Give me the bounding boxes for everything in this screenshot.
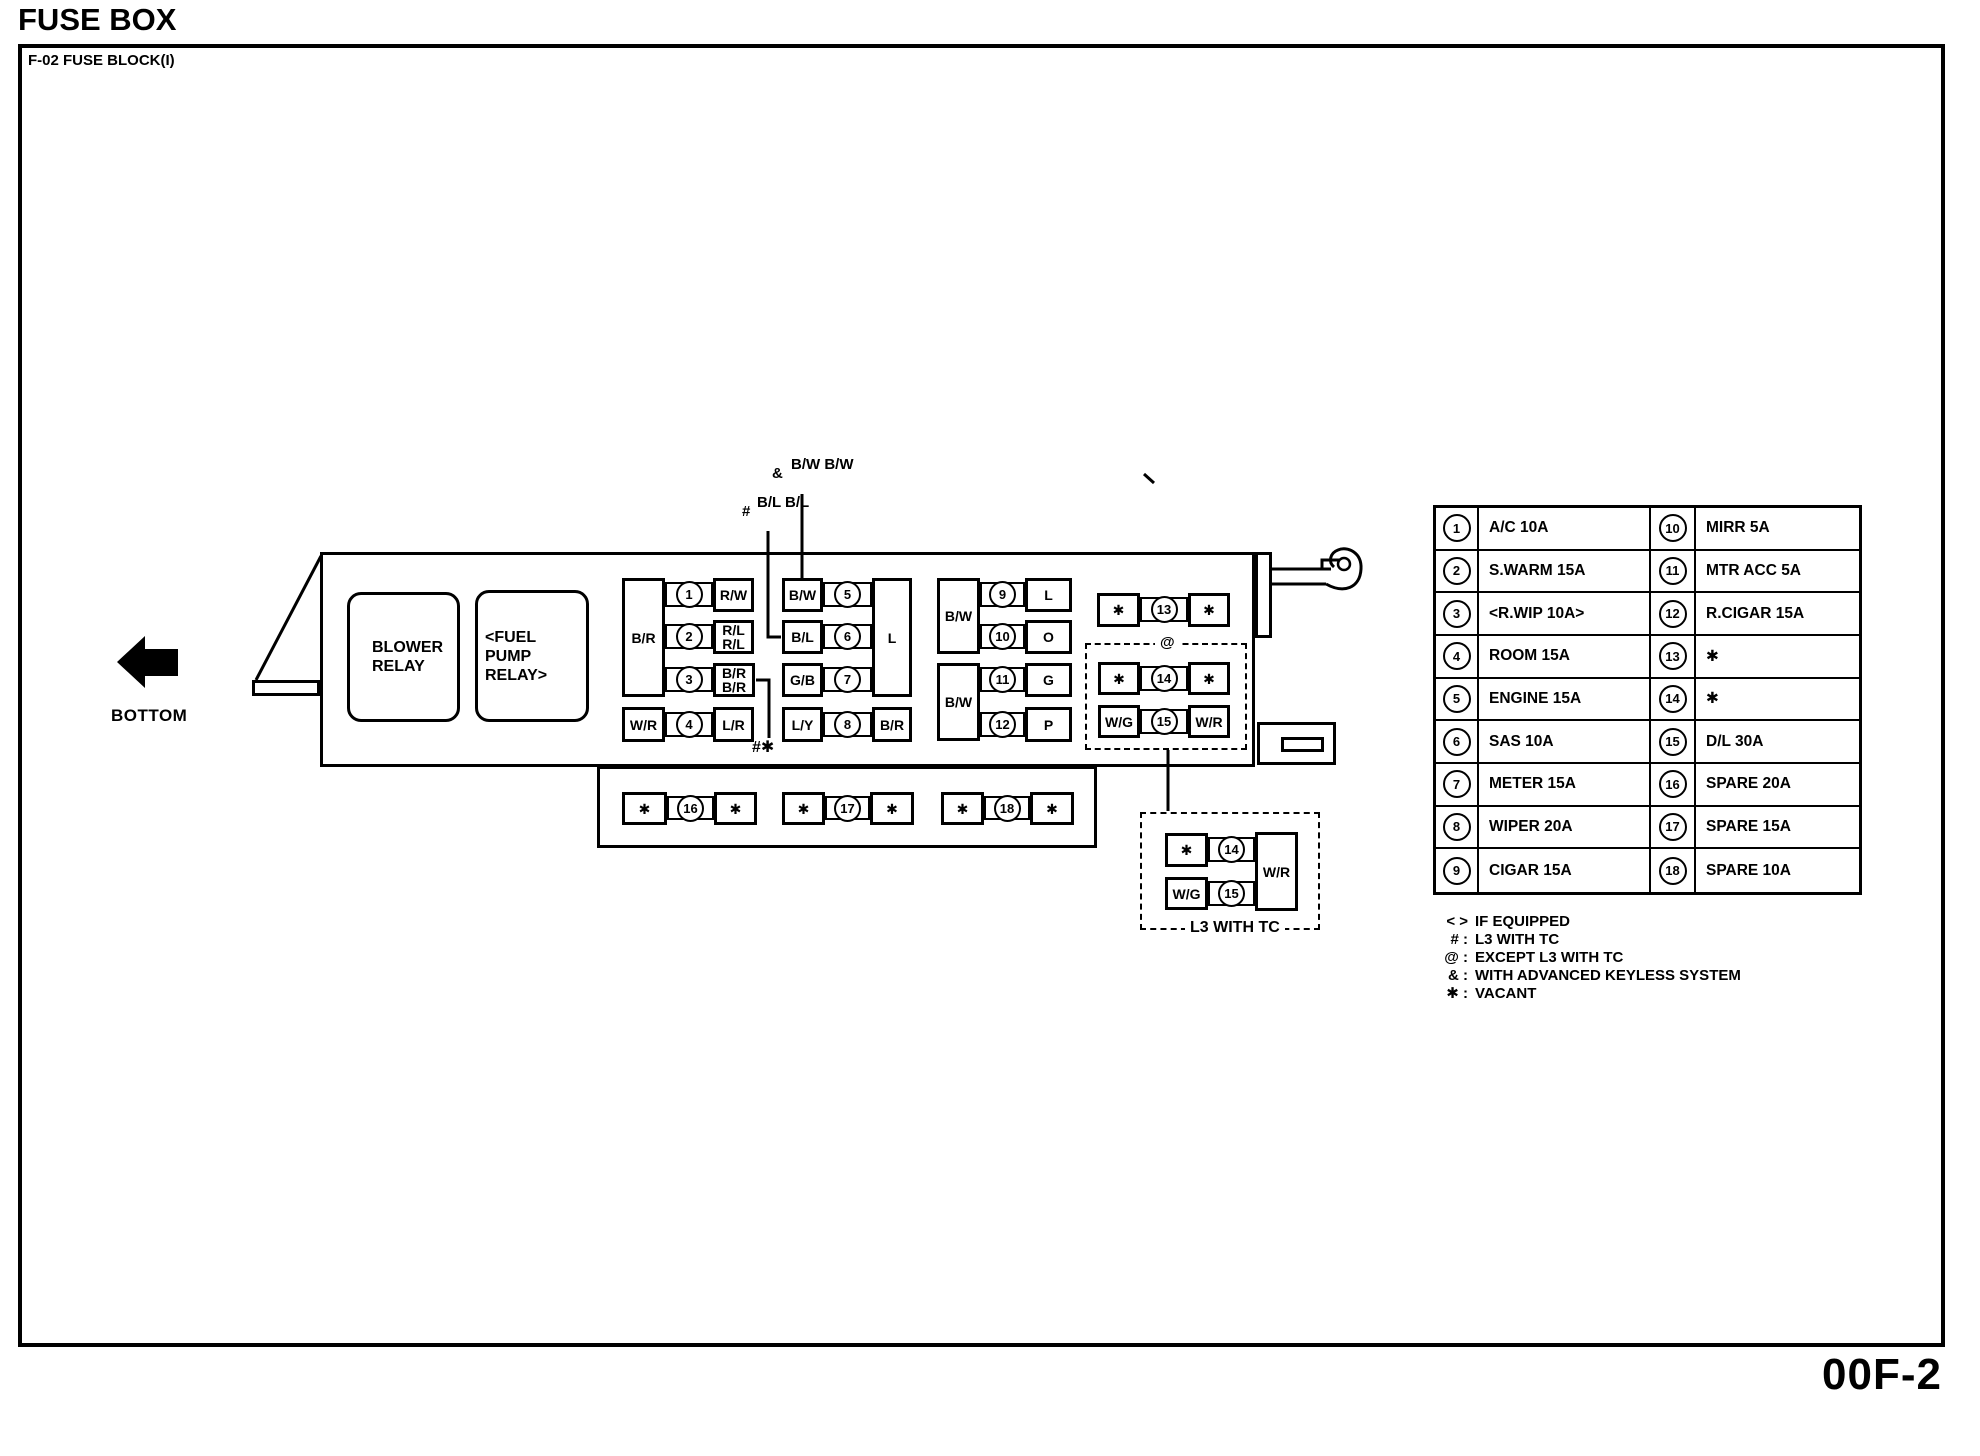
fuse-8-connector: 8 — [823, 712, 872, 737]
fuse-5-left-wire: B/W — [782, 578, 823, 612]
fuse-18-badge: 18 — [1659, 857, 1687, 885]
fuse-6-badge: 6 — [1443, 728, 1471, 756]
legend: < > IF EQUIPPED # : L3 WITH TC @ : EXCEP… — [1434, 913, 1741, 1003]
fuse-4-right-wire: L/R — [713, 707, 754, 742]
fuse-2-badge: 2 — [1443, 557, 1471, 585]
fuse-17-number: 17 — [834, 795, 861, 822]
page-number: 00F-2 — [1650, 1350, 1942, 1400]
legend-text: WITH ADVANCED KEYLESS SYSTEM — [1475, 967, 1741, 985]
fuse-group2-common-wire: L — [872, 578, 912, 697]
fuse-10-connector: 10 — [980, 624, 1025, 649]
fuse-2-right-wire: R/L R/L — [713, 620, 754, 654]
fuse-12-number: 12 — [989, 711, 1016, 738]
fuse-13-right-wire: ✱ — [1188, 593, 1230, 627]
fuse-7-left-wire: G/B — [782, 663, 823, 697]
left-flap-bar — [252, 680, 320, 696]
page-title: FUSE BOX — [18, 2, 176, 38]
l3-fuse-15-left-wire: W/G — [1165, 877, 1208, 910]
fuse-11-badge: 11 — [1659, 557, 1687, 585]
l3-fuse-15-connector: 15 — [1208, 881, 1255, 906]
fuse-1-right-wire: R/W — [713, 578, 754, 612]
fuse-4-number: 4 — [676, 711, 703, 738]
fuse-5-badge: 5 — [1443, 685, 1471, 713]
fuse-3-number: 3 — [676, 666, 703, 693]
manual-page: FUSE BOX F-02 FUSE BLOCK(I) 00F-2 BOTTOM… — [0, 0, 1980, 1456]
keyless-wires: B/W B/W — [791, 457, 853, 473]
fuse-1-connector: 1 — [665, 582, 713, 607]
legend-text: EXCEPT L3 WITH TC — [1475, 949, 1741, 967]
fuse-17-badge: 17 — [1659, 813, 1687, 841]
table-num-cell: 12 — [1651, 593, 1696, 636]
table-num-cell: 10 — [1651, 508, 1696, 551]
fuse-1-badge: 1 — [1443, 514, 1471, 542]
fuse-16-badge: 16 — [1659, 770, 1687, 798]
fuse-13-number: 13 — [1151, 596, 1178, 623]
table-num-cell: 5 — [1436, 679, 1479, 722]
fuse-3-connector: 3 — [665, 667, 713, 692]
fuse-8-number: 8 — [834, 711, 861, 738]
fuse-15-number: 15 — [1151, 708, 1178, 735]
table-label-cell: A/C 10A — [1479, 508, 1651, 551]
bottom-arrow-label: BOTTOM — [111, 706, 187, 726]
legend-symbol: @ : — [1434, 949, 1468, 967]
table-label-cell: MTR ACC 5A — [1696, 551, 1859, 594]
keyless-symbol: & — [772, 466, 783, 482]
l3-box-label: L3 WITH TC — [1185, 919, 1285, 937]
fuse-5-connector: 5 — [823, 582, 872, 607]
fuse-15-connector: 15 — [1140, 709, 1188, 734]
l3tc-wires: B/L B/L — [757, 495, 809, 511]
table-num-cell: 15 — [1651, 721, 1696, 764]
fuse-group3a-common-wire: B/W — [937, 578, 980, 654]
fuse-2-connector: 2 — [665, 624, 713, 649]
fuse-8-left-wire: L/Y — [782, 707, 823, 742]
table-num-cell: 9 — [1436, 849, 1479, 892]
table-label-cell: ENGINE 15A — [1479, 679, 1651, 722]
fuse-11-right-wire: G — [1025, 663, 1072, 697]
table-num-cell: 14 — [1651, 679, 1696, 722]
fuse-10-right-wire: O — [1025, 620, 1072, 654]
fuse-10-number: 10 — [989, 623, 1016, 650]
legend-symbol: & : — [1434, 967, 1468, 985]
l3-fuse-15-number: 15 — [1218, 880, 1245, 907]
fuse-15-badge: 15 — [1659, 728, 1687, 756]
legend-text: VACANT — [1475, 985, 1741, 1003]
hash-star-annotation: #✱ — [752, 740, 774, 756]
fusebox-right-rib — [1255, 552, 1272, 638]
fuse-14-right-wire: ✱ — [1188, 662, 1230, 695]
fuse-application-table: 1 A/C 10A 10 MIRR 5A 2 S.WARM 15A 11 MTR… — [1433, 505, 1862, 895]
table-label-cell: SPARE 15A — [1696, 807, 1859, 850]
table-num-cell: 8 — [1436, 807, 1479, 850]
fuse-5-number: 5 — [834, 581, 861, 608]
fuse-6-number: 6 — [834, 623, 861, 650]
legend-symbol: < > — [1434, 913, 1468, 931]
table-num-cell: 17 — [1651, 807, 1696, 850]
fuse-18-right-wire: ✱ — [1030, 792, 1074, 825]
table-label-cell: D/L 30A — [1696, 721, 1859, 764]
table-num-cell: 18 — [1651, 849, 1696, 892]
fuse-9-number: 9 — [989, 581, 1016, 608]
table-num-cell: 11 — [1651, 551, 1696, 594]
table-label-cell: S.WARM 15A — [1479, 551, 1651, 594]
fuse-12-right-wire: P — [1025, 707, 1072, 742]
l3tc-symbol: # — [742, 504, 750, 520]
fuse-9-connector: 9 — [980, 582, 1025, 607]
table-num-cell: 3 — [1436, 593, 1479, 636]
fuse-14-badge: 14 — [1659, 685, 1687, 713]
fuse-8-right-wire: B/R — [872, 707, 912, 742]
fuse-11-number: 11 — [989, 666, 1016, 693]
mount-tab-slot — [1281, 737, 1324, 752]
fuse-2-number: 2 — [676, 623, 703, 650]
fuse-3-badge: 3 — [1443, 600, 1471, 628]
fuse-17-connector: 17 — [825, 796, 870, 820]
table-label-cell: SPARE 10A — [1696, 849, 1859, 892]
fuse-14-number: 14 — [1151, 665, 1178, 692]
fuse-4-badge: 4 — [1443, 642, 1471, 670]
fuse-15-right-wire: W/R — [1188, 705, 1230, 738]
at-symbol-annotation: @ — [1155, 634, 1180, 651]
fuse-13-left-wire: ✱ — [1097, 593, 1140, 627]
blower-relay: BLOWER RELAY — [347, 592, 460, 722]
fuse-group3b-common-wire: B/W — [937, 663, 980, 741]
table-label-cell: <R.WIP 10A> — [1479, 593, 1651, 636]
l3-fuse-14-left-wire: ✱ — [1165, 833, 1208, 867]
fuse-1-number: 1 — [676, 581, 703, 608]
fuse-14-left-wire: ✱ — [1098, 662, 1140, 695]
legend-text: L3 WITH TC — [1475, 931, 1741, 949]
fuse-12-connector: 12 — [980, 712, 1025, 737]
table-label-cell: ✱ — [1696, 679, 1859, 722]
fuse-16-number: 16 — [677, 795, 704, 822]
fuse-9-badge: 9 — [1443, 857, 1471, 885]
block-label: F-02 FUSE BLOCK(I) — [28, 52, 175, 69]
fuse-7-number: 7 — [834, 666, 861, 693]
table-num-cell: 16 — [1651, 764, 1696, 807]
table-label-cell: CIGAR 15A — [1479, 849, 1651, 892]
fuse-9-right-wire: L — [1025, 578, 1072, 612]
fuse-18-left-wire: ✱ — [941, 792, 984, 825]
fuse-6-connector: 6 — [823, 624, 872, 649]
fuse-4-left-wire: W/R — [622, 707, 665, 742]
fuse-18-number: 18 — [994, 795, 1021, 822]
fuse-7-badge: 7 — [1443, 770, 1471, 798]
table-num-cell: 2 — [1436, 551, 1479, 594]
fuse-15-left-wire: W/G — [1098, 705, 1140, 738]
table-label-cell: ROOM 15A — [1479, 636, 1651, 679]
fuse-14-connector: 14 — [1140, 666, 1188, 691]
fuse-4-connector: 4 — [665, 712, 713, 737]
fuse-17-right-wire: ✱ — [870, 792, 914, 825]
table-num-cell: 7 — [1436, 764, 1479, 807]
l3-common-wire: W/R — [1255, 832, 1298, 911]
table-label-cell: MIRR 5A — [1696, 508, 1859, 551]
table-label-cell: ✱ — [1696, 636, 1859, 679]
legend-symbol: ✱ : — [1434, 985, 1468, 1003]
table-label-cell: SPARE 20A — [1696, 764, 1859, 807]
table-num-cell: 6 — [1436, 721, 1479, 764]
fuse-16-connector: 16 — [667, 796, 714, 820]
l3-fuse-14-connector: 14 — [1208, 837, 1255, 862]
legend-symbol: # : — [1434, 931, 1468, 949]
table-num-cell: 13 — [1651, 636, 1696, 679]
fuse-7-connector: 7 — [823, 667, 872, 692]
fuse-11-connector: 11 — [980, 667, 1025, 692]
table-label-cell: R.CIGAR 15A — [1696, 593, 1859, 636]
fuse-8-badge: 8 — [1443, 813, 1471, 841]
fuse-group1-common-wire: B/R — [622, 578, 665, 697]
table-label-cell: WIPER 20A — [1479, 807, 1651, 850]
fuse-13-badge: 13 — [1659, 642, 1687, 670]
fuse-10-badge: 10 — [1659, 514, 1687, 542]
table-num-cell: 4 — [1436, 636, 1479, 679]
fuse-3-right-wire: B/R B/R — [713, 663, 755, 697]
fuse-6-left-wire: B/L — [782, 620, 823, 654]
fuse-12-badge: 12 — [1659, 600, 1687, 628]
fuse-13-connector: 13 — [1140, 597, 1188, 622]
table-label-cell: METER 15A — [1479, 764, 1651, 807]
fuse-16-right-wire: ✱ — [714, 792, 757, 825]
fuse-17-left-wire: ✱ — [782, 792, 825, 825]
table-label-cell: SAS 10A — [1479, 721, 1651, 764]
legend-text: IF EQUIPPED — [1475, 913, 1741, 931]
fuse-18-connector: 18 — [984, 796, 1030, 820]
fuel-pump-relay: <FUEL PUMP RELAY> — [475, 590, 589, 722]
l3-fuse-14-number: 14 — [1218, 836, 1245, 863]
table-num-cell: 1 — [1436, 508, 1479, 551]
fuse-16-left-wire: ✱ — [622, 792, 667, 825]
